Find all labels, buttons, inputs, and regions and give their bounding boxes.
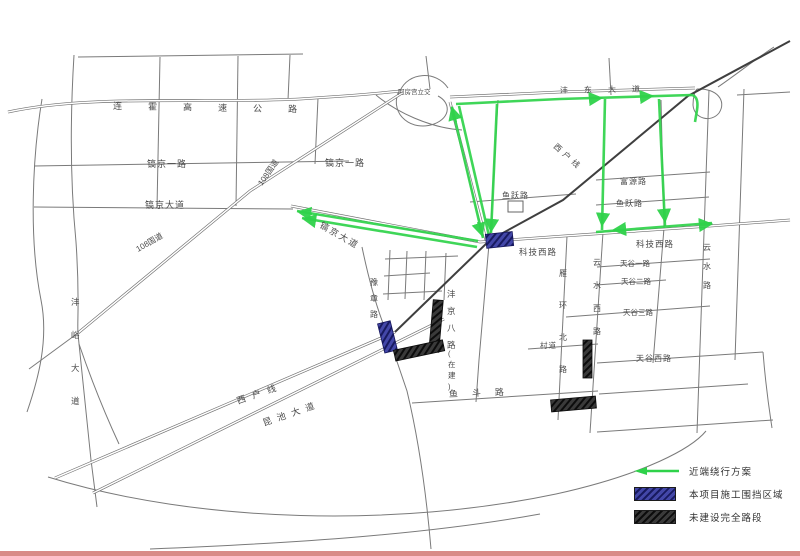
road-label: 鱼跃路: [502, 190, 529, 200]
unbuilt-segment-3: [583, 340, 592, 378]
road-label: (在建): [448, 349, 456, 391]
road-label: 科技西路: [636, 239, 674, 249]
major-roads-layer: [8, 88, 790, 493]
road-label: 镐京一路: [147, 158, 187, 169]
road-label: 村道: [540, 340, 557, 350]
road-label: 天谷一路: [620, 258, 650, 268]
legend-item-detour: 近端绕行方案: [634, 464, 798, 478]
accent-bar: [0, 551, 800, 556]
unbuilt-segment-2: [394, 340, 445, 361]
construction-zone-2: [378, 321, 398, 353]
road-label: 镐京大道: [145, 199, 185, 210]
unbuilt-segment-4: [551, 396, 597, 412]
road-labels-layer: 连霍高速公路阿房宫立交沣东大道镐京一路镐京一路镐京大道108国道108国道镐京大…: [71, 83, 711, 428]
road-label: 镐京一路: [325, 157, 365, 168]
legend-label-unbuilt: 未建设完全路段: [689, 510, 763, 524]
road-label: 鱼跃路: [616, 198, 643, 208]
legend-item-unbuilt: 未建设完全路段: [634, 510, 798, 524]
road-label: 沣峪大道: [71, 297, 80, 406]
road-label: 阿房宫立交: [398, 87, 431, 96]
road-label: 豫章路: [370, 277, 378, 319]
road-label: 连霍高速公路: [113, 100, 323, 115]
road-label: 沣京八路: [447, 289, 456, 350]
road-label: 天谷西路: [636, 353, 672, 363]
detour-arrow-icon: [634, 466, 680, 476]
road-label: 昆池大道: [261, 398, 321, 428]
map-legend: 近端绕行方案 本项目施工围挡区域 未建设完全路段: [634, 464, 798, 533]
railway-station-box: [508, 201, 523, 212]
detour-routes: [297, 95, 712, 247]
road-label: 沣东大道: [560, 83, 656, 95]
map-canvas: 连霍高速公路阿房宫立交沣东大道镐京一路镐京一路镐京大道108国道108国道镐京大…: [0, 0, 800, 556]
legend-item-construction: 本项目施工围挡区域: [634, 487, 798, 501]
road-label: 富源路: [620, 176, 647, 186]
legend-label-construction: 本项目施工围挡区域: [689, 487, 784, 501]
unbuilt-swatch: [634, 510, 680, 524]
road-label: 108国道: [134, 230, 164, 253]
construction-zone-1: [485, 232, 513, 249]
road-label: 科技西路: [519, 247, 557, 257]
construction-swatch: [634, 487, 680, 501]
road-label: 天谷二路: [621, 276, 651, 286]
road-label: 天谷三路: [623, 307, 653, 317]
road-label: 西户线: [552, 141, 585, 173]
legend-label-detour: 近端绕行方案: [689, 464, 752, 478]
road-label: 云水路: [703, 243, 711, 290]
